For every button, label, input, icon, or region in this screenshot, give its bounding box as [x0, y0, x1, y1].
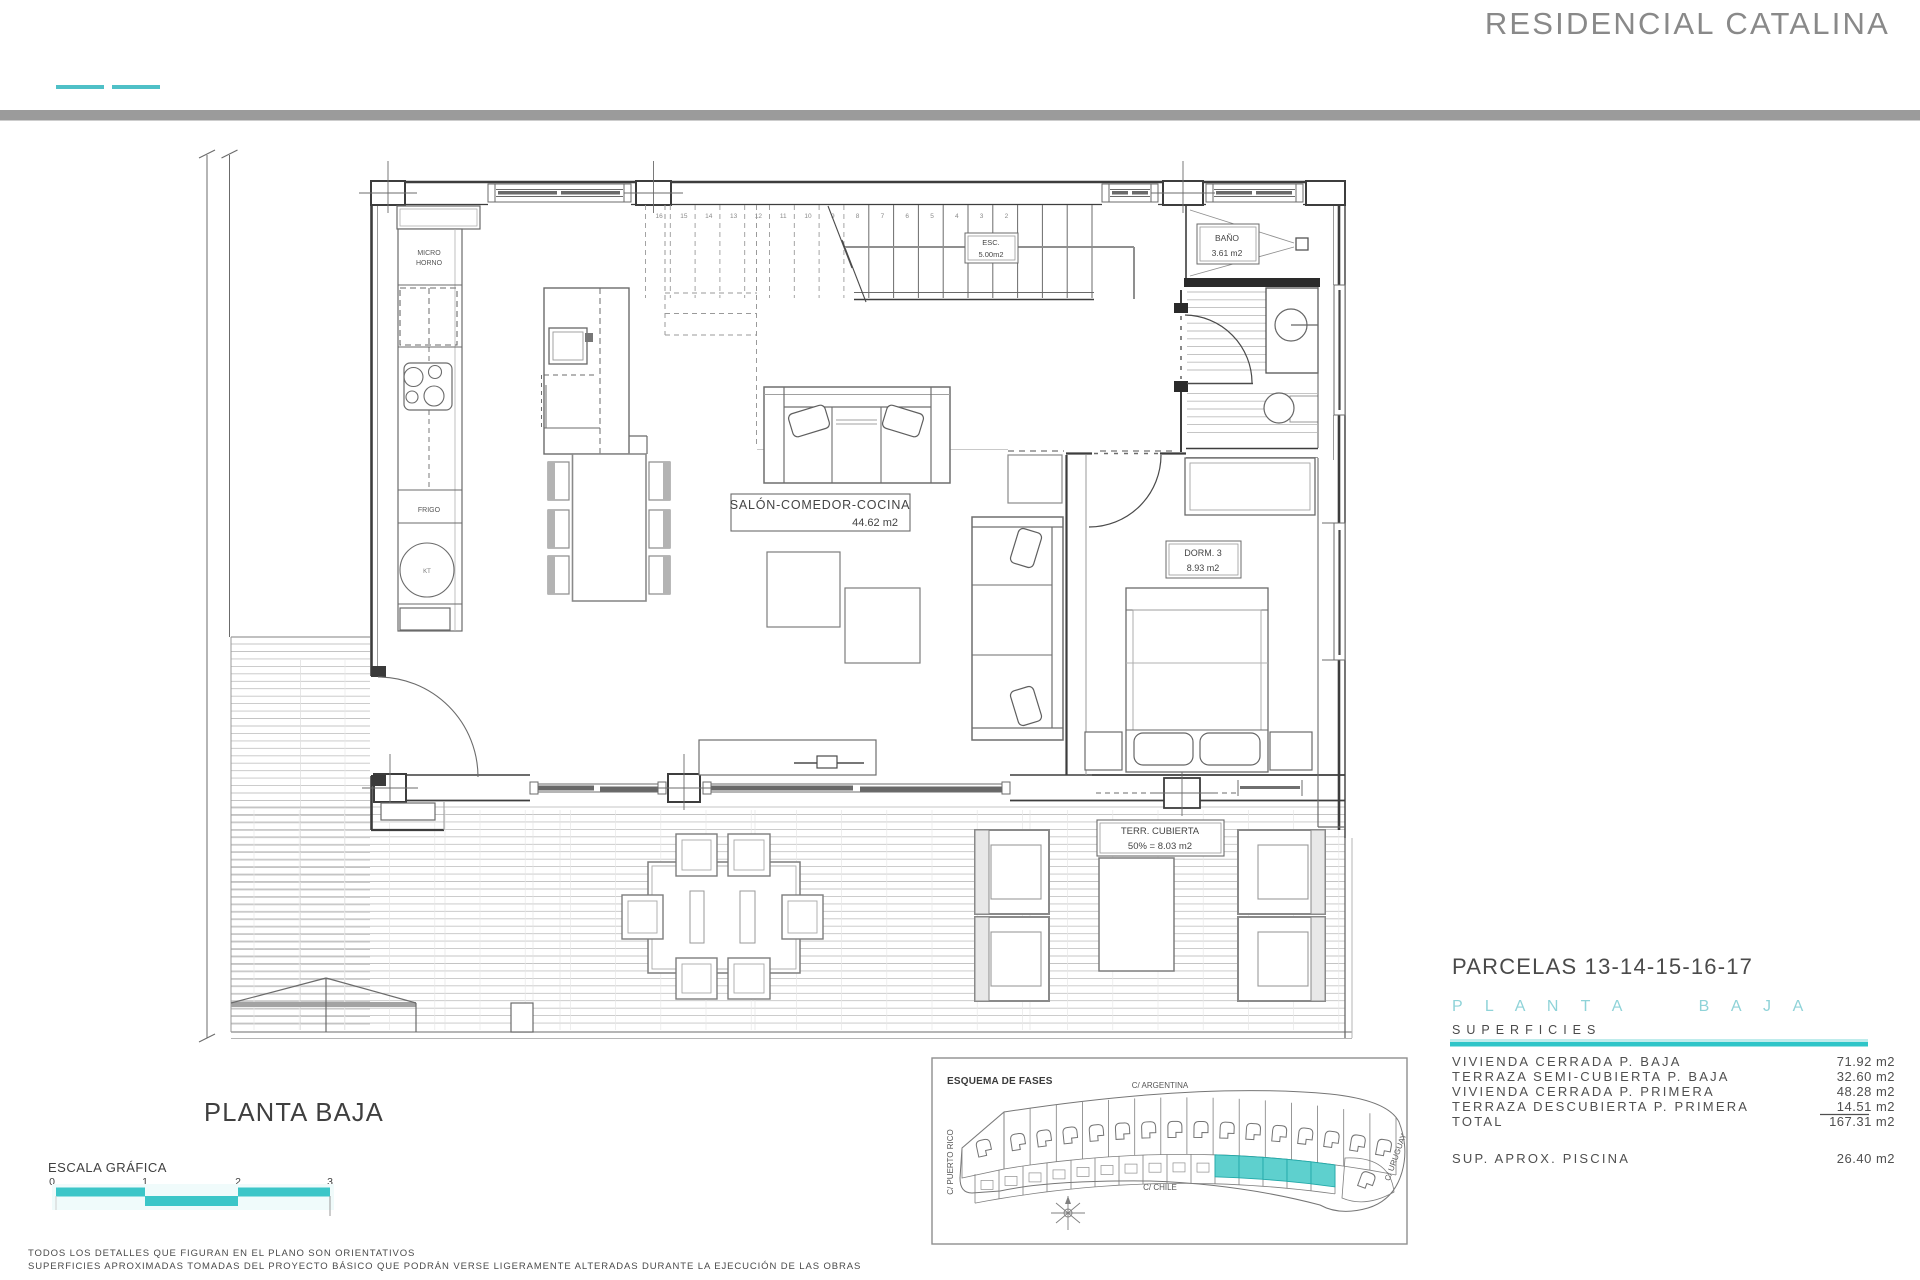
svg-text:MICRO: MICRO — [417, 250, 441, 257]
svg-text:BAÑO: BAÑO — [1215, 233, 1239, 243]
svg-text:RESIDENCIAL CATALINA: RESIDENCIAL CATALINA — [1485, 6, 1890, 41]
svg-text:8: 8 — [856, 213, 860, 220]
svg-text:TERR. CUBIERTA: TERR. CUBIERTA — [1121, 826, 1200, 837]
svg-text:VIVIENDA CERRADA P. BAJA: VIVIENDA CERRADA P. BAJA — [1452, 1054, 1682, 1069]
svg-text:167.31 m2: 167.31 m2 — [1829, 1114, 1895, 1129]
svg-text:C/ ARGENTINA: C/ ARGENTINA — [1132, 1081, 1189, 1090]
svg-text:11: 11 — [780, 213, 787, 220]
svg-text:KT: KT — [423, 569, 431, 575]
svg-text:12: 12 — [755, 213, 763, 220]
svg-text:13: 13 — [730, 213, 738, 220]
svg-text:3: 3 — [980, 213, 984, 220]
svg-text:4: 4 — [955, 213, 959, 220]
svg-text:48.28 m2: 48.28 m2 — [1837, 1084, 1895, 1099]
svg-text:TOTAL: TOTAL — [1452, 1114, 1504, 1129]
svg-text:TERRAZA SEMI-CUBIERTA P. BAJA: TERRAZA SEMI-CUBIERTA P. BAJA — [1452, 1069, 1730, 1084]
svg-text:5: 5 — [930, 213, 934, 220]
svg-text:14: 14 — [705, 213, 713, 220]
svg-text:8.93 m2: 8.93 m2 — [1187, 563, 1220, 573]
svg-text:7: 7 — [881, 213, 885, 220]
svg-text:SUPERFICIES: SUPERFICIES — [1452, 1023, 1601, 1037]
svg-text:ESC.: ESC. — [982, 238, 1000, 247]
svg-text:44.62 m2: 44.62 m2 — [852, 517, 898, 529]
svg-text:50% = 8.03 m2: 50% = 8.03 m2 — [1128, 841, 1192, 852]
svg-text:SUP. APROX. PISCINA: SUP. APROX. PISCINA — [1452, 1151, 1630, 1166]
svg-text:15: 15 — [680, 213, 688, 220]
svg-text:14.51 m2: 14.51 m2 — [1837, 1099, 1895, 1114]
svg-text:SALÓN-COMEDOR-COCINA: SALÓN-COMEDOR-COCINA — [730, 497, 911, 512]
svg-text:3.61 m2: 3.61 m2 — [1212, 248, 1243, 258]
svg-text:C/ CHILE: C/ CHILE — [1143, 1183, 1177, 1192]
svg-text:PARCELAS 13-14-15-16-17: PARCELAS 13-14-15-16-17 — [1452, 954, 1753, 979]
svg-text:16: 16 — [655, 213, 663, 220]
svg-text:VIVIENDA CERRADA P. PRIMERA: VIVIENDA CERRADA P. PRIMERA — [1452, 1084, 1715, 1099]
svg-text:FRIGO: FRIGO — [418, 507, 441, 514]
svg-text:HORNO: HORNO — [416, 260, 443, 267]
svg-text:P L A N T A B A J A: P L A N T A B A J A — [1452, 998, 1812, 1015]
svg-text:26.40 m2: 26.40 m2 — [1837, 1151, 1895, 1166]
svg-text:10: 10 — [804, 213, 812, 220]
svg-text:71.92 m2: 71.92 m2 — [1837, 1054, 1895, 1069]
svg-text:5.00m2: 5.00m2 — [978, 250, 1003, 259]
svg-text:C/ PUERTO RICO: C/ PUERTO RICO — [946, 1129, 955, 1195]
svg-text:ESQUEMA DE FASES: ESQUEMA DE FASES — [947, 1076, 1053, 1087]
svg-text:6: 6 — [905, 213, 909, 220]
svg-text:PLANTA BAJA: PLANTA BAJA — [204, 1099, 384, 1127]
svg-text:2: 2 — [1005, 213, 1009, 220]
svg-text:ESCALA GRÁFICA: ESCALA GRÁFICA — [48, 1160, 167, 1175]
svg-text:DORM. 3: DORM. 3 — [1184, 548, 1222, 558]
svg-text:TERRAZA DESCUBIERTA P. PRIMERA: TERRAZA DESCUBIERTA P. PRIMERA — [1452, 1099, 1749, 1114]
svg-text:32.60 m2: 32.60 m2 — [1837, 1069, 1895, 1084]
svg-text:SUPERFICIES APROXIMADAS TOMADA: SUPERFICIES APROXIMADAS TOMADAS DEL PROY… — [28, 1261, 861, 1272]
svg-text:TODOS LOS DETALLES QUE FIGURAN: TODOS LOS DETALLES QUE FIGURAN EN EL PLA… — [28, 1248, 415, 1259]
